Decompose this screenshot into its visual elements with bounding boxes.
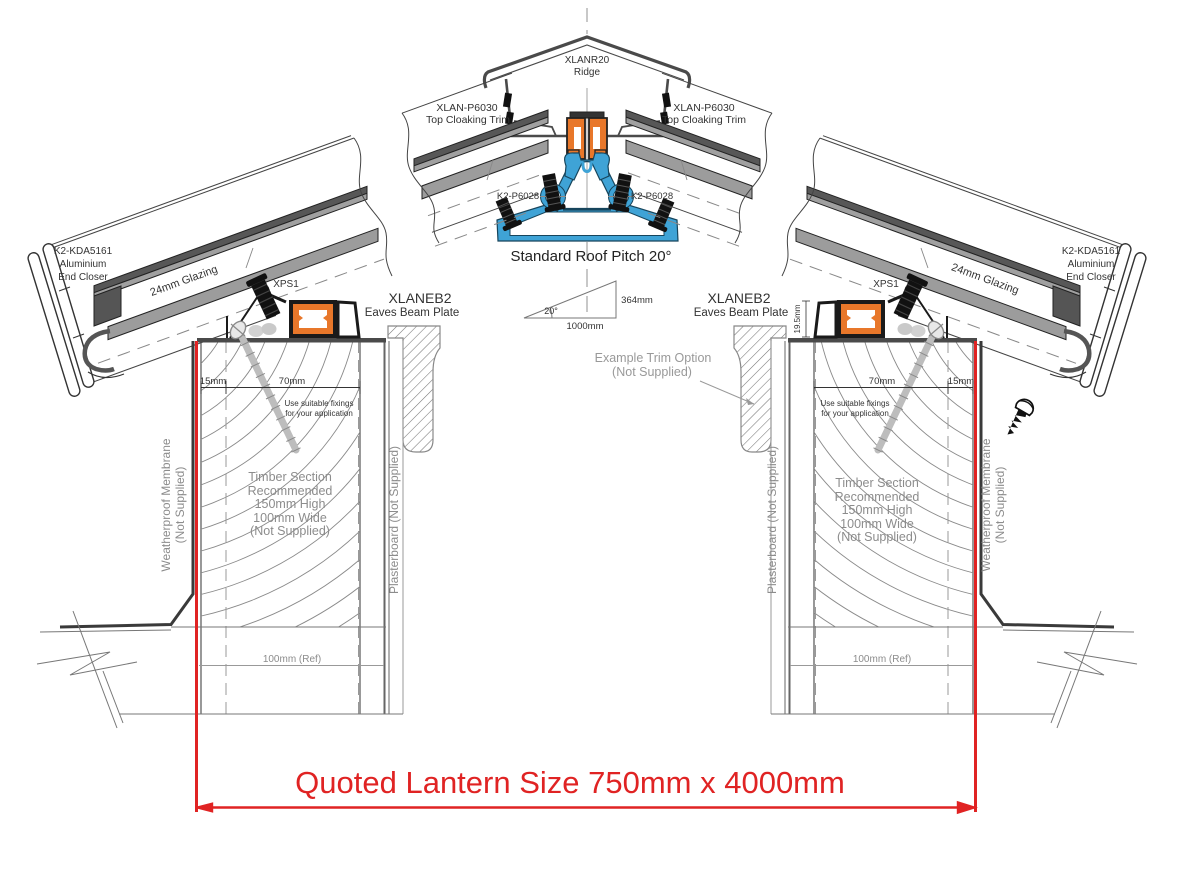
svg-text:End Closer: End Closer [58,272,108,283]
svg-text:Plasterboard (Not Supplied): Plasterboard (Not Supplied) [387,446,401,594]
svg-text:15mm: 15mm [948,376,974,387]
svg-text:K2-P6028: K2-P6028 [631,191,673,202]
svg-text:Timber Section: Timber Section [835,476,919,490]
svg-text:Top Cloaking Trim: Top Cloaking Trim [426,114,510,126]
svg-text:(Not Supplied): (Not Supplied) [250,524,330,538]
svg-text:XLAN-P6030: XLAN-P6030 [436,102,497,114]
svg-text:150mm High: 150mm High [255,497,326,511]
svg-text:15mm: 15mm [200,376,226,387]
svg-text:Example Trim Option: Example Trim Option [595,351,712,365]
svg-text:Use suitable fixings: Use suitable fixings [821,399,890,408]
svg-text:Ridge: Ridge [574,67,601,78]
svg-text:100mm (Ref): 100mm (Ref) [263,654,321,665]
svg-text:XLANR20: XLANR20 [565,55,610,66]
svg-text:for your application: for your application [285,409,353,418]
svg-text:Recommended: Recommended [835,490,920,504]
svg-text:for your application: for your application [821,409,889,418]
svg-text:Standard Roof Pitch 20°: Standard Roof Pitch 20° [510,248,671,265]
svg-text:XPS1: XPS1 [873,279,899,290]
svg-text:1000mm: 1000mm [567,321,604,332]
svg-text:K2-KDA5161: K2-KDA5161 [1062,246,1121,257]
svg-text:XPS1: XPS1 [273,279,299,290]
svg-text:XLANEB2: XLANEB2 [388,290,451,306]
svg-text:(Not Supplied): (Not Supplied) [612,365,692,379]
svg-text:Quoted Lantern Size 750mm x 40: Quoted Lantern Size 750mm x 4000mm [295,765,845,800]
svg-text:Top Cloaking Trim: Top Cloaking Trim [662,114,746,126]
svg-text:End Closer: End Closer [1066,272,1116,283]
svg-text:K2-P6028: K2-P6028 [497,191,539,202]
svg-text:364mm: 364mm [621,295,653,306]
svg-text:Use suitable fixings: Use suitable fixings [285,399,354,408]
svg-text:Timber Section: Timber Section [248,470,332,484]
svg-text:70mm: 70mm [869,376,895,387]
svg-text:Aluminium: Aluminium [60,259,107,270]
svg-text:XLANEB2: XLANEB2 [707,290,770,306]
svg-text:(Not Supplied): (Not Supplied) [993,467,1007,544]
svg-text:19.5mm: 19.5mm [793,304,802,333]
svg-text:Eaves Beam Plate: Eaves Beam Plate [694,307,789,319]
svg-text:Eaves Beam Plate: Eaves Beam Plate [365,307,460,319]
svg-text:Plasterboard (Not Supplied): Plasterboard (Not Supplied) [765,446,779,594]
svg-text:Weatherproof Membrane: Weatherproof Membrane [159,438,173,572]
svg-text:70mm: 70mm [279,376,305,387]
svg-text:100mm Wide: 100mm Wide [840,517,914,531]
svg-text:K2-KDA5161: K2-KDA5161 [54,246,113,257]
svg-text:Aluminium: Aluminium [1068,259,1115,270]
svg-text:Weatherproof Membrane: Weatherproof Membrane [979,438,993,572]
svg-text:(Not Supplied): (Not Supplied) [837,530,917,544]
svg-text:100mm (Ref): 100mm (Ref) [853,654,911,665]
svg-text:100mm Wide: 100mm Wide [253,511,327,525]
svg-text:Recommended: Recommended [248,484,333,498]
svg-text:20°: 20° [544,306,558,316]
svg-text:150mm High: 150mm High [842,503,913,517]
svg-text:(Not Supplied): (Not Supplied) [173,467,187,544]
svg-text:XLAN-P6030: XLAN-P6030 [673,102,734,114]
